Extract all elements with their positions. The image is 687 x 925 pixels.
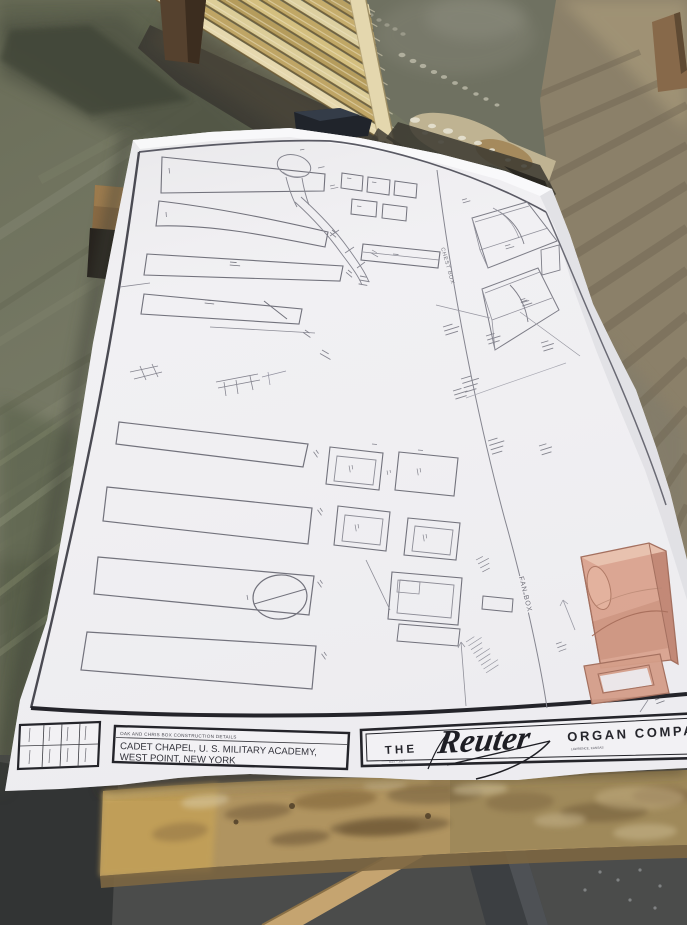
svg-text:EST - 1917: EST - 1917 bbox=[389, 759, 405, 764]
svg-text:THE: THE bbox=[384, 743, 417, 757]
svg-text:Reuter: Reuter bbox=[435, 719, 534, 761]
